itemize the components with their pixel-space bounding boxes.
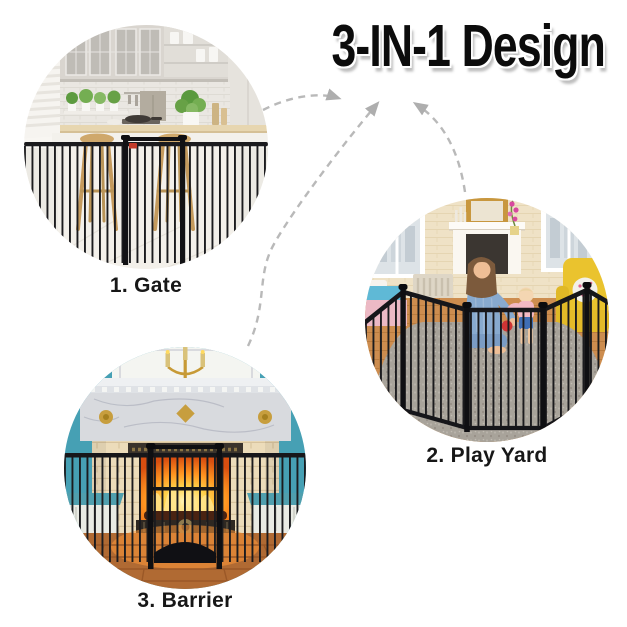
feature-circle-gate [24, 25, 268, 269]
arrow-playyard-to-title [416, 104, 465, 192]
kitchen-gate-photo [24, 25, 268, 269]
counter-edge [60, 131, 268, 133]
play-yard-photo [365, 198, 609, 442]
feature-circle-barrier [64, 347, 306, 589]
gate-latch-red [129, 143, 137, 149]
feature-label-barrier: 3. Barrier [64, 589, 306, 613]
marble-mantel [72, 378, 299, 441]
left-window [369, 198, 425, 278]
feature-label-gate: 1. Gate [24, 274, 268, 298]
feature-label-play-yard: 2. Play Yard [365, 444, 609, 468]
safety-gate [24, 135, 268, 265]
barrier-photo [64, 347, 306, 589]
page-title: 3-IN-1 Design [331, 12, 598, 80]
counter-top [60, 125, 268, 132]
arrow-gate-to-title [263, 95, 338, 110]
product-infographic: 3-IN-1 Design [0, 0, 627, 627]
fireplace-barrier-fence [64, 443, 306, 569]
feature-circle-play-yard [365, 198, 609, 442]
